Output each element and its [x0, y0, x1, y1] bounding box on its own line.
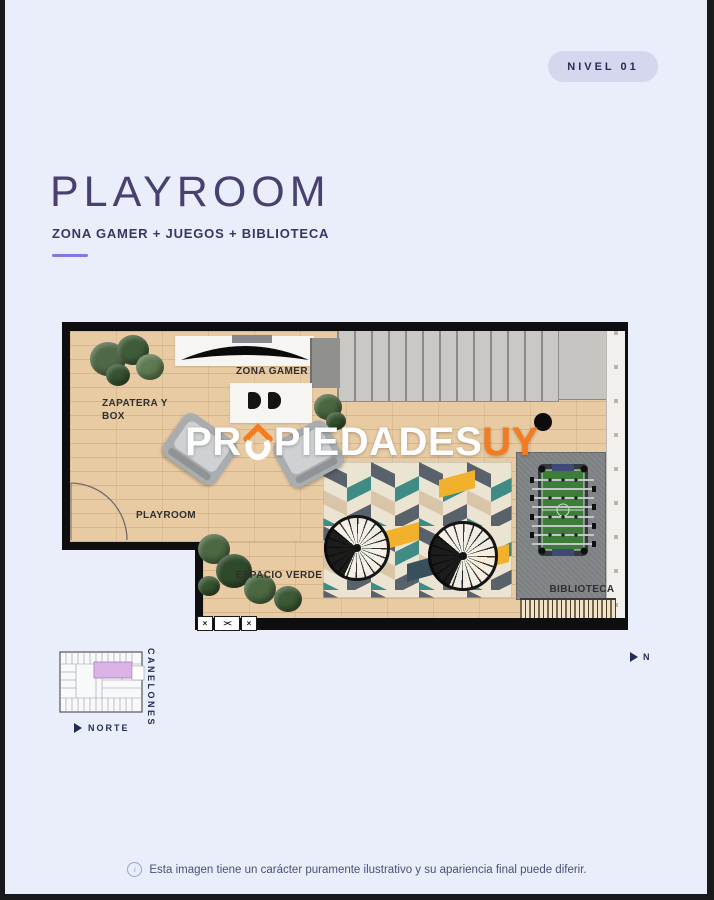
- level-badge: NIVEL 01: [548, 51, 658, 82]
- bookshelf: [520, 598, 616, 618]
- watermark-house-icon: [243, 423, 273, 461]
- street-label-canelones: CANELONES: [146, 648, 156, 726]
- floorplan: ZONA GAMER ZAPATERA Y BOX PLAYROOM: [62, 322, 628, 632]
- compass-north: N: [630, 652, 650, 662]
- plant-icon: [274, 586, 302, 612]
- label-espacio-verde: ESPACIO VERDE: [231, 570, 327, 583]
- page-title: PLAYROOM: [50, 168, 331, 217]
- watermark-suffix: UY: [482, 420, 539, 464]
- disclaimer-text: Esta imagen tiene un carácter puramente …: [149, 864, 586, 876]
- compass-arrow-icon: [630, 652, 638, 662]
- screen-edge-bottom: [0, 894, 714, 900]
- locator-highlight: [94, 662, 132, 678]
- window-symbol: ><: [214, 616, 240, 631]
- compass-n-label: N: [643, 652, 650, 662]
- title-underline: [52, 254, 88, 257]
- north-arrow-icon: [74, 723, 82, 733]
- window-symbol: ×: [197, 616, 213, 631]
- watermark-middle: PIEDADES: [274, 420, 483, 464]
- screen-edge-left: [0, 0, 5, 900]
- north-indicator: NORTE: [74, 723, 130, 733]
- watermark-prefix: PR: [185, 420, 242, 464]
- watermark: PRPIEDADESUY: [162, 420, 562, 465]
- label-playroom: PLAYROOM: [126, 510, 206, 523]
- page-subtitle: ZONA GAMER + JUEGOS + BIBLIOTECA: [52, 226, 329, 241]
- info-icon: i: [127, 862, 142, 877]
- plant-icon: [198, 576, 220, 596]
- window-symbol: ×: [241, 616, 257, 631]
- unit-locator-map: [56, 646, 148, 724]
- north-label: NORTE: [88, 723, 130, 733]
- label-biblioteca: BIBLIOTECA: [532, 584, 632, 597]
- screen-edge-right: [707, 0, 714, 900]
- disclaimer: i Esta imagen tiene un carácter purament…: [0, 862, 714, 877]
